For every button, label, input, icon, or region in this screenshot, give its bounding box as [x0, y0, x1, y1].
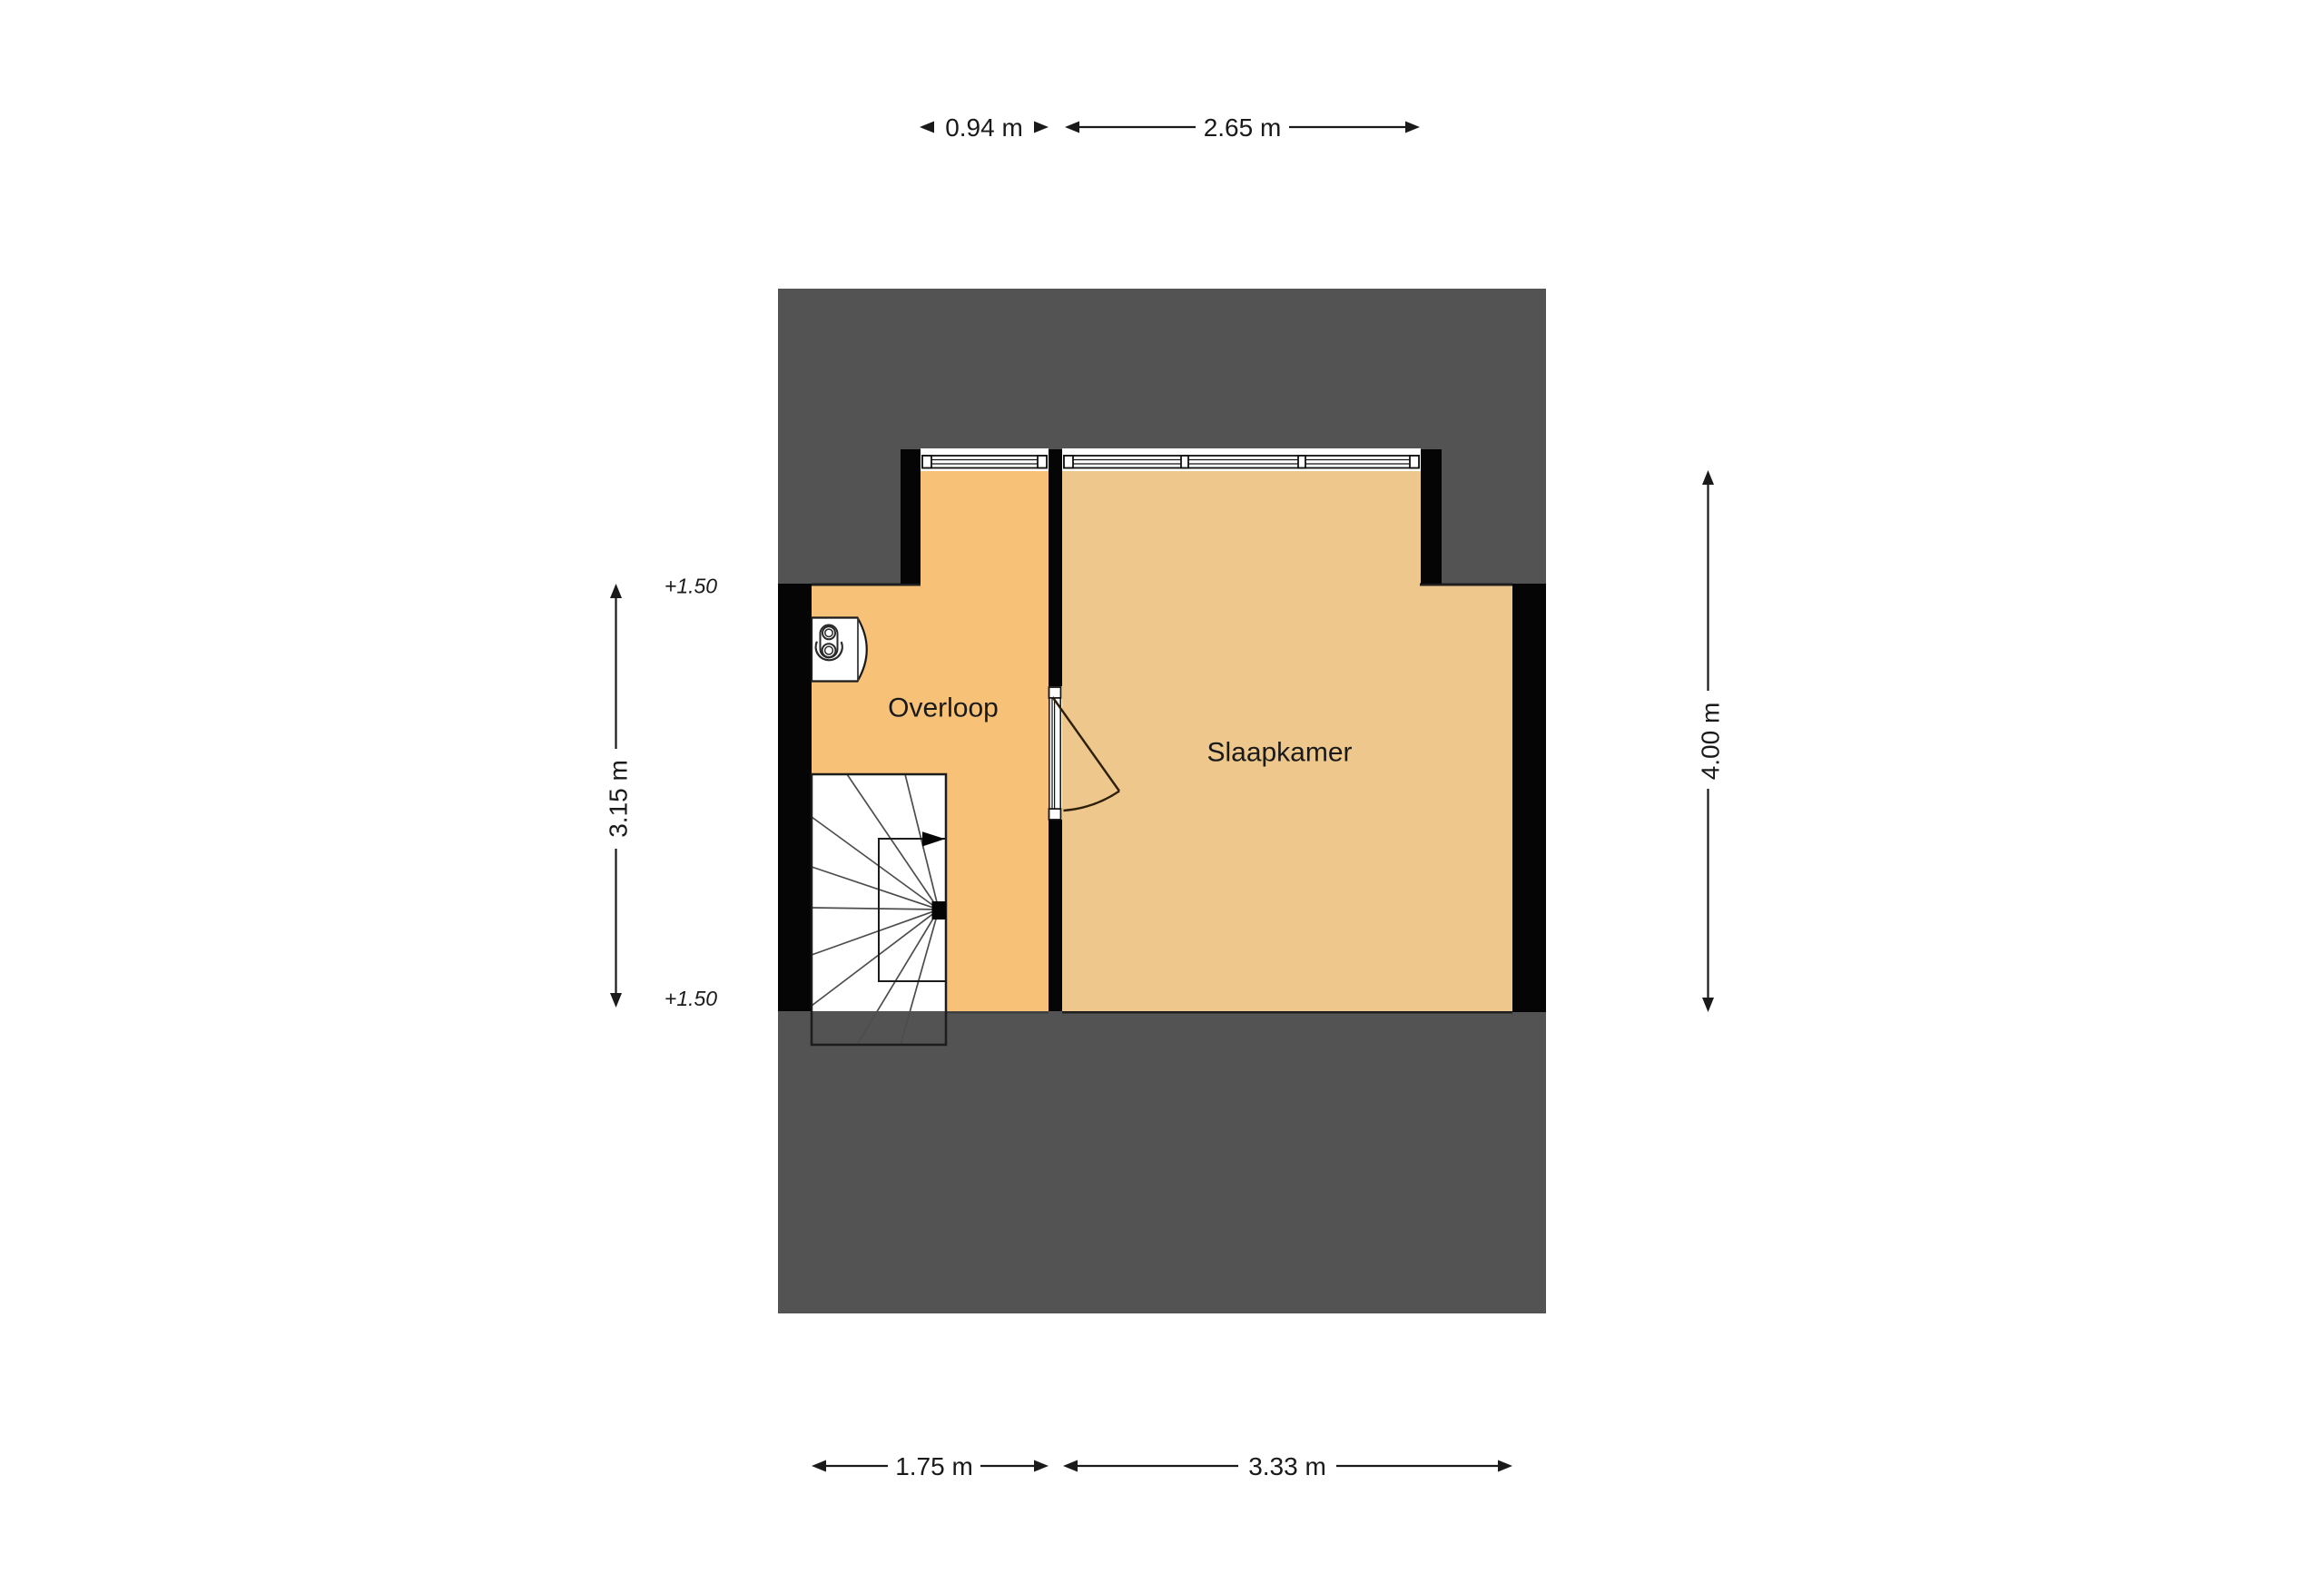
svg-text:+1.50: +1.50 — [665, 987, 717, 1010]
svg-text:1.75 m: 1.75 m — [895, 1452, 973, 1480]
svg-text:3.33 m: 3.33 m — [1248, 1452, 1326, 1480]
svg-text:4.00 m: 4.00 m — [1697, 703, 1725, 781]
svg-text:3.15 m: 3.15 m — [605, 760, 633, 838]
svg-text:0.94 m: 0.94 m — [945, 113, 1023, 142]
svg-text:Overloop: Overloop — [888, 693, 999, 723]
svg-text:2.65 m: 2.65 m — [1204, 113, 1282, 142]
svg-text:+1.50: +1.50 — [665, 575, 717, 598]
svg-text:Slaapkamer: Slaapkamer — [1206, 737, 1352, 767]
